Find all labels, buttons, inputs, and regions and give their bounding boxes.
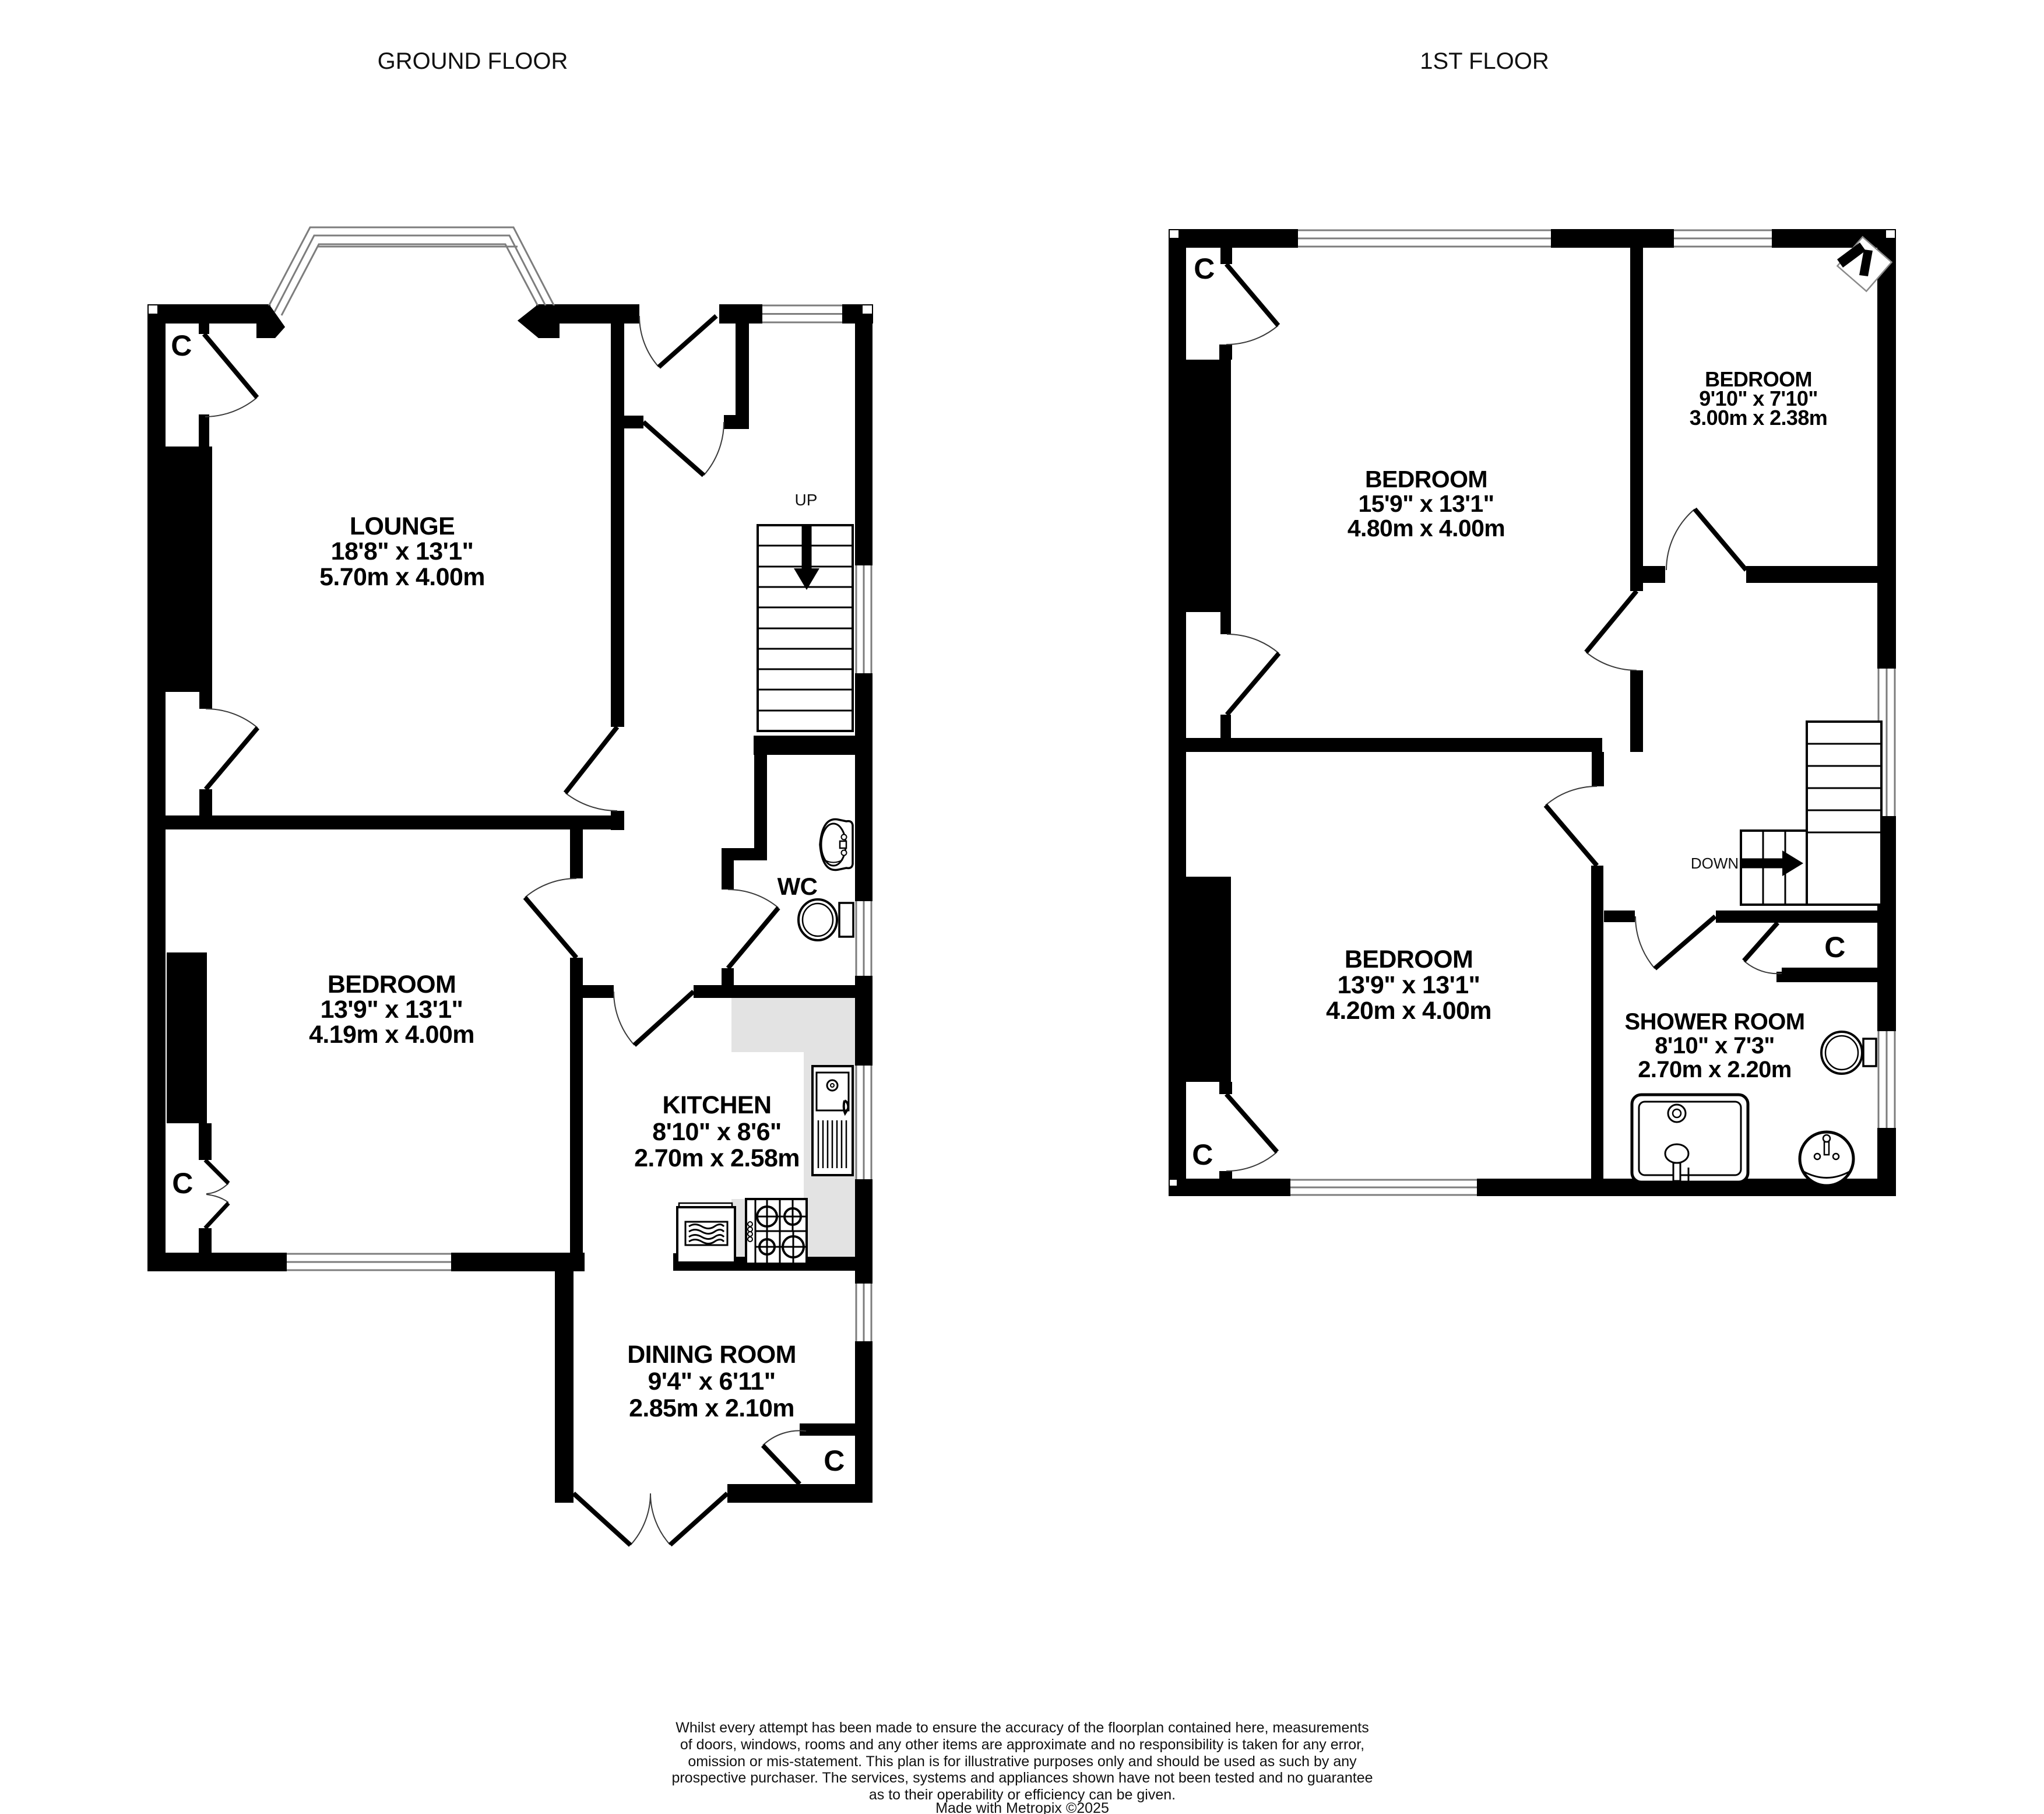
svg-text:2.70m x 2.58m: 2.70m x 2.58m (634, 1144, 800, 1172)
svg-text:C: C (824, 1444, 845, 1477)
svg-text:LOUNGE: LOUNGE (350, 512, 455, 540)
svg-text:C: C (1194, 252, 1215, 285)
svg-text:13'9" x 13'1": 13'9" x 13'1" (1338, 971, 1480, 999)
svg-text:Whilst every attempt has been: Whilst every attempt has been made to en… (676, 1720, 1369, 1736)
svg-text:BEDROOM: BEDROOM (1345, 945, 1473, 973)
svg-text:8'10" x 7'3": 8'10" x 7'3" (1655, 1033, 1774, 1059)
svg-text:UP: UP (795, 491, 818, 509)
svg-text:5.70m x 4.00m: 5.70m x 4.00m (319, 563, 485, 591)
svg-text:C: C (171, 329, 192, 362)
svg-text:4.19m x 4.00m: 4.19m x 4.00m (309, 1021, 474, 1049)
svg-text:2.70m x 2.20m: 2.70m x 2.20m (1638, 1057, 1792, 1082)
svg-text:BEDROOM: BEDROOM (328, 971, 456, 999)
svg-text:BEDROOM: BEDROOM (1365, 466, 1487, 493)
svg-text:15'9" x 13'1": 15'9" x 13'1" (1359, 490, 1494, 517)
svg-text:2.85m x 2.10m: 2.85m x 2.10m (629, 1394, 794, 1422)
svg-text:8'10" x 8'6": 8'10" x 8'6" (652, 1118, 781, 1146)
svg-text:3.00m x 2.38m: 3.00m x 2.38m (1690, 406, 1827, 430)
svg-text:SHOWER ROOM: SHOWER ROOM (1625, 1009, 1805, 1035)
svg-text:KITCHEN: KITCHEN (663, 1091, 772, 1119)
svg-text:of doors, windows, rooms and a: of doors, windows, rooms and any other i… (680, 1736, 1364, 1753)
svg-text:9'4" x 6'11": 9'4" x 6'11" (648, 1367, 775, 1395)
svg-text:C: C (1192, 1138, 1213, 1171)
svg-text:C: C (172, 1167, 193, 1200)
svg-text:Made with Metropix ©2025: Made with Metropix ©2025 (935, 1800, 1109, 1814)
svg-text:GROUND FLOOR: GROUND FLOOR (378, 48, 568, 74)
svg-text:4.20m x 4.00m: 4.20m x 4.00m (1326, 997, 1491, 1025)
svg-text:prospective purchaser. The ser: prospective purchaser. The services, sys… (671, 1770, 1373, 1786)
svg-text:DOWN: DOWN (1691, 855, 1739, 872)
svg-text:4.80m x 4.00m: 4.80m x 4.00m (1348, 515, 1505, 542)
svg-text:DINING ROOM: DINING ROOM (627, 1341, 796, 1369)
svg-text:C: C (1824, 931, 1845, 964)
svg-text:WC: WC (778, 873, 818, 900)
svg-text:omission or mis-statement. Thi: omission or mis-statement. This plan is … (688, 1753, 1357, 1770)
svg-text:1ST FLOOR: 1ST FLOOR (1420, 48, 1549, 74)
svg-text:13'9" x 13'1": 13'9" x 13'1" (321, 996, 463, 1024)
svg-text:18'8" x 13'1": 18'8" x 13'1" (331, 537, 474, 565)
